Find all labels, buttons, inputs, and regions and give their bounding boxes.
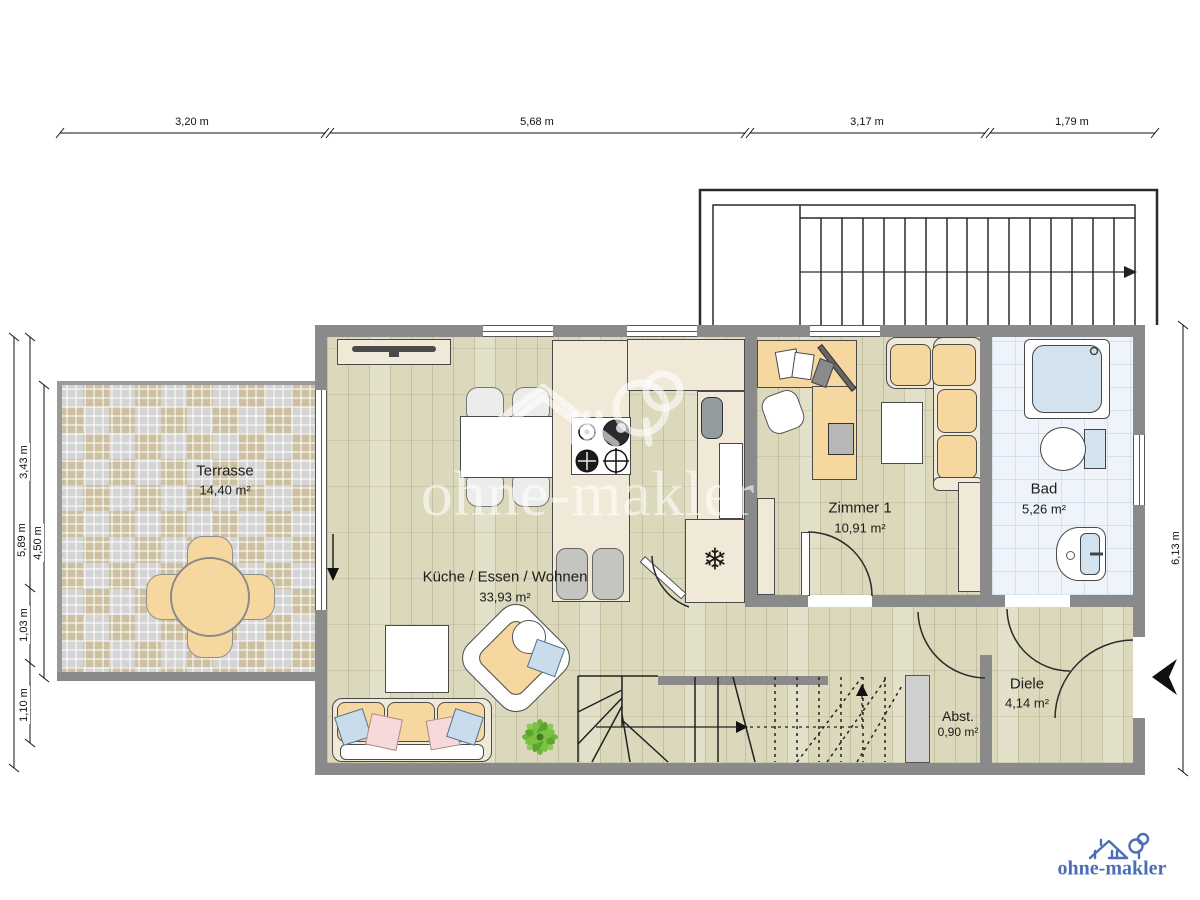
dim-top-4: 1,79 m <box>1053 116 1091 128</box>
room-area-zimmer1: 10,91 m² <box>834 521 885 536</box>
room-area-kueche: 33,93 m² <box>479 590 530 605</box>
wall-top <box>553 325 627 337</box>
living-rug <box>385 625 449 693</box>
shelf <box>757 498 775 595</box>
terrace-edge-left <box>57 381 62 678</box>
wall-bottom <box>315 763 1145 775</box>
zimmer1-door-leaf <box>801 532 810 596</box>
shower <box>1032 345 1102 413</box>
floor-plan: ❄ ohne-makler Terrasse 14,40 m² Küche / … <box>0 0 1200 900</box>
window-kitchen-1 <box>483 325 553 337</box>
terrace-edge-top <box>57 381 317 385</box>
desk-paper <box>791 352 814 381</box>
window-zimmer1 <box>810 325 880 337</box>
exterior-staircase <box>700 190 1157 325</box>
bath-sink-drain <box>1066 551 1075 560</box>
wall-top <box>315 325 483 337</box>
wall-left <box>315 325 327 390</box>
room-label-zimmer1: Zimmer 1 <box>828 500 891 517</box>
hall-floor <box>745 607 1133 763</box>
corner-sofa-cushion <box>937 389 977 433</box>
window-kitchen-2 <box>627 325 697 337</box>
room-label-kueche: Küche / Essen / Wohnen <box>423 569 588 586</box>
dim-top-3: 3,17 m <box>848 116 886 128</box>
corner-sofa-cushion <box>932 344 976 386</box>
bar-stool <box>592 548 624 600</box>
bath-sink-basin <box>1080 533 1100 575</box>
room-area-terrasse: 14,40 m² <box>199 483 250 498</box>
toilet-bowl <box>1040 427 1086 471</box>
dim-left-seg-2: 1,03 m <box>18 606 30 644</box>
corner-sofa-cushion <box>937 435 977 479</box>
room-label-diele: Diele <box>1010 676 1044 693</box>
wall-diele-west <box>980 655 992 763</box>
wall-abst-partition <box>905 675 930 763</box>
terrace-door <box>315 390 327 610</box>
wall-right <box>1133 718 1145 775</box>
dim-left-terrace: 4,50 m <box>32 524 44 562</box>
wall-zimmer1-bottom <box>745 595 808 607</box>
toilet-tank <box>1084 429 1106 469</box>
freezer-icon: ❄ <box>702 543 727 578</box>
dim-left-seg-3: 1,10 m <box>18 686 30 724</box>
entrance-arrow-icon <box>1152 659 1177 695</box>
dining-chair <box>512 387 550 418</box>
wall-zimmer1-bad <box>980 337 992 595</box>
dim-left-seg-1: 3,43 m <box>18 443 30 481</box>
terrace-table <box>170 557 250 637</box>
room-label-bad: Bad <box>1031 481 1058 498</box>
desk-drawer-unit <box>828 423 854 455</box>
wall-zimmer1-bottom <box>872 595 992 607</box>
kitchen-sink <box>701 397 723 439</box>
dim-top-2: 5,68 m <box>518 116 556 128</box>
room-label-terrasse: Terrasse <box>196 463 254 480</box>
wall-right <box>1133 325 1145 435</box>
tv-stand <box>389 352 399 357</box>
dim-top-1: 3,20 m <box>173 116 211 128</box>
wall-stairs-top <box>658 676 828 685</box>
dining-chair <box>466 387 504 418</box>
coffee-table <box>881 402 923 464</box>
sofa-front <box>340 744 484 760</box>
window-bath <box>1133 435 1145 505</box>
dim-left-total: 5,89 m <box>16 521 28 559</box>
sofa-pillow-pink <box>365 713 403 751</box>
wall-bad-bottom <box>992 595 1005 607</box>
wall-left <box>315 610 327 775</box>
room-area-bad: 5,26 m² <box>1022 502 1066 517</box>
watermark-text: ohne-makler <box>421 457 755 531</box>
room-area-diele: 4,14 m² <box>1005 696 1049 711</box>
logo-text: ohne-makler <box>1058 858 1167 881</box>
room-label-abst: Abst. <box>942 708 974 724</box>
wall-top <box>697 325 810 337</box>
corner-sofa-cushion <box>890 344 931 386</box>
room-area-abst: 0,90 m² <box>938 725 979 739</box>
wall-bad-bottom <box>1070 595 1133 607</box>
logo-house-icon <box>1090 834 1148 858</box>
kitchen-counter-top <box>627 339 745 391</box>
dim-right: 6,13 m <box>1170 529 1182 567</box>
wall-top <box>880 325 1145 337</box>
wall-right <box>1133 505 1145 637</box>
terrace-edge-bottom <box>57 672 317 681</box>
